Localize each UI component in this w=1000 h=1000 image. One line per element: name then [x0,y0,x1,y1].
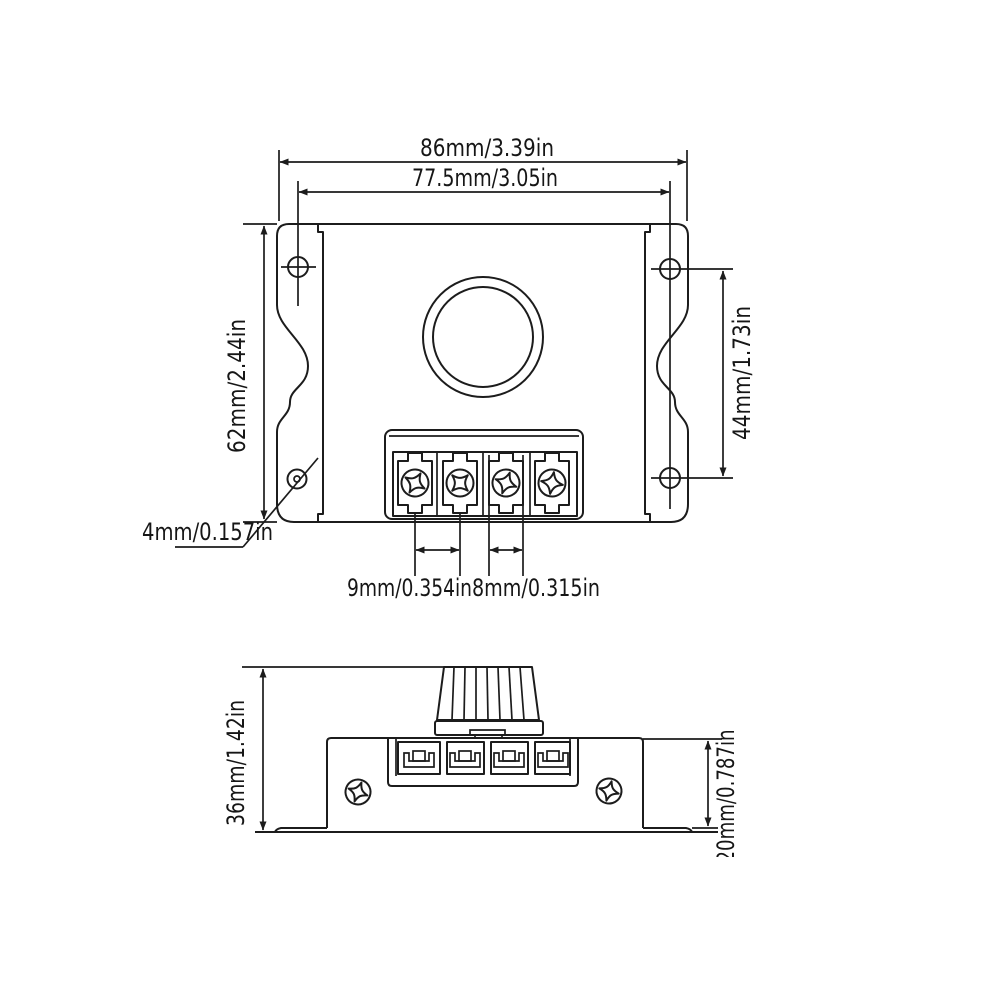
case-screw-right [594,776,625,807]
dim-label-side-body-height: 20mm/0.787in [712,730,740,863]
knob-ridges [452,667,524,720]
terminal-cell [447,742,484,774]
mounting-hole-bottom-left [288,470,307,489]
side-view: 36mm/1.42in 20mm/0.787in [222,667,749,875]
terminal-clip-center [459,751,471,761]
dim-label-hole-diameter: 4mm/0.157in [142,518,273,546]
drawing-canvas: 86mm/3.39in 77.5mm/3.05in 62mm/2.44in 44… [0,0,1000,1000]
terminal-clip-center [547,751,559,761]
dim-label-hole-spacing-height: 44mm/1.73in [728,306,756,440]
terminal-cell [535,742,570,774]
knob-ridge [498,667,500,720]
dim-side-body-height: 20mm/0.787in [643,730,749,876]
case-screw-left [342,776,374,808]
terminal-clip-center [503,751,515,761]
knob-ridge [464,667,465,720]
terminal-clip [404,753,434,767]
dim-label-terminal-screw-pitch: 9mm/0.354in [347,574,472,602]
knob-ridge [509,667,512,720]
terminal-clip [538,753,568,767]
terminal-block-top [385,430,583,519]
dim-label-side-overall-height: 36mm/1.42in [222,700,250,826]
label-crop-mask [713,857,749,875]
knob-hole-inner [433,287,533,387]
knob-ridge [452,667,454,720]
dim-overall-height: 62mm/2.44in [223,224,277,522]
dim-label-overall-height: 62mm/2.44in [223,319,251,453]
dim-label-hole-spacing-width: 77.5mm/3.05in [412,164,558,192]
dim-label-terminal-slot-width: 8mm/0.315in [472,574,600,602]
dim-hole-spacing-height: 44mm/1.73in [723,271,756,476]
terminal-clip [494,753,524,767]
knob-collar [435,721,543,735]
knob-ridge [487,667,488,720]
knob-hole-outer [423,277,543,397]
top-view: 86mm/3.39in 77.5mm/3.05in 62mm/2.44in 44… [142,134,756,602]
terminal-cell [491,742,528,774]
dim-hole-spacing-width: 77.5mm/3.05in [299,164,669,192]
technical-drawing-page: 86mm/3.39in 77.5mm/3.05in 62mm/2.44in 44… [0,0,1000,1000]
dim-label-overall-width: 86mm/3.39in [420,134,554,162]
terminal-clip [450,753,480,767]
knob-ridge [520,667,524,720]
knob [435,667,543,738]
body-left-edge [318,224,323,522]
body-right-edge [645,224,650,522]
dim-side-overall-height: 36mm/1.42in [222,667,444,830]
terminal-clips-side [404,751,568,767]
terminal-clip-center [413,751,425,761]
terminal-block-side [388,738,578,786]
